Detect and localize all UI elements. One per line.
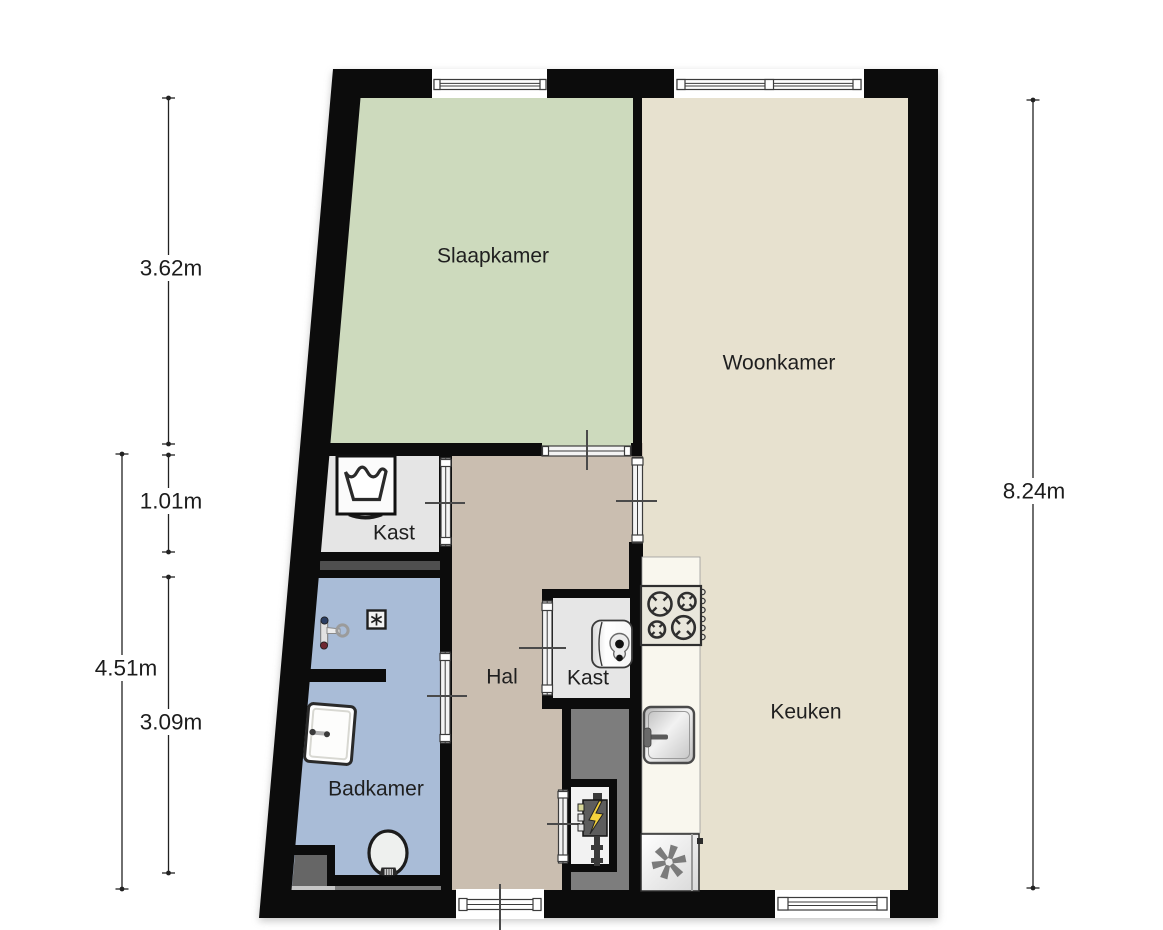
svg-text:Badkamer: Badkamer [328, 778, 424, 801]
svg-text:3.62m: 3.62m [140, 256, 203, 281]
svg-text:4.51m: 4.51m [95, 656, 158, 681]
svg-text:1.01m: 1.01m [140, 489, 203, 514]
svg-text:3.09m: 3.09m [140, 710, 203, 735]
svg-text:Hal: Hal [486, 666, 518, 689]
svg-text:8.24m: 8.24m [1003, 479, 1066, 504]
svg-text:Woonkamer: Woonkamer [723, 352, 836, 375]
svg-text:Kast: Kast [373, 522, 415, 545]
svg-text:Kast: Kast [567, 667, 609, 690]
svg-text:Keuken: Keuken [770, 701, 841, 724]
svg-text:Slaapkamer: Slaapkamer [437, 245, 549, 268]
